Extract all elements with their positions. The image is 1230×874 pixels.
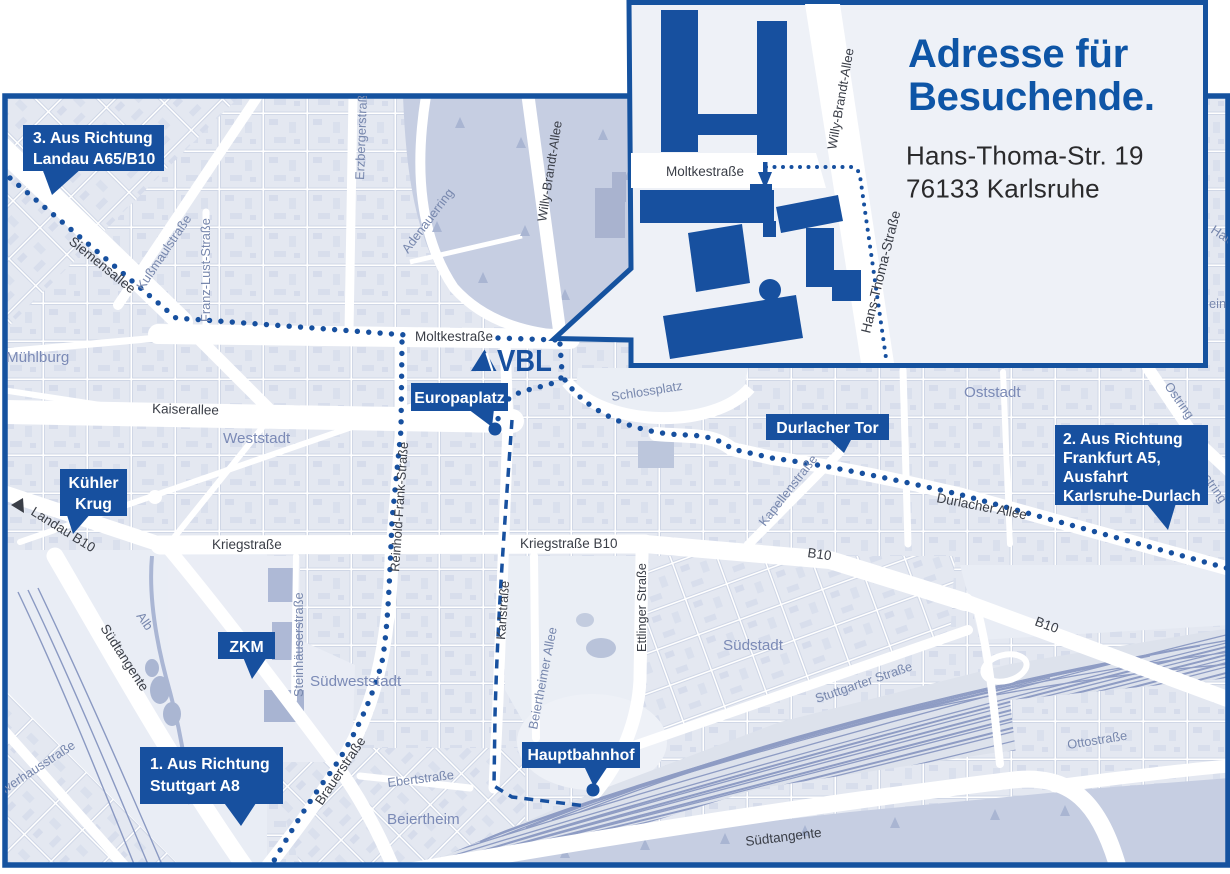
svg-text:Steinhäuserstraße: Steinhäuserstraße <box>291 592 306 697</box>
svg-text:1. Aus Richtung: 1. Aus Richtung <box>150 756 270 773</box>
svg-text:Kriegstraße B10: Kriegstraße B10 <box>520 536 618 551</box>
svg-text:Moltkestraße: Moltkestraße <box>666 164 744 179</box>
svg-text:Landau A65/B10: Landau A65/B10 <box>33 151 156 168</box>
svg-text:VBL: VBL <box>497 345 552 379</box>
svg-text:Hans-Thoma-Str. 19: Hans-Thoma-Str. 19 <box>906 141 1144 171</box>
svg-text:Südweststadt: Südweststadt <box>310 673 402 690</box>
svg-text:Oststadt: Oststadt <box>964 384 1021 401</box>
svg-text:Krug: Krug <box>75 496 112 513</box>
svg-text:Ausfahrt: Ausfahrt <box>1063 469 1129 486</box>
svg-text:Ettlinger Straße: Ettlinger Straße <box>634 563 649 652</box>
svg-text:Hauptbahnhof: Hauptbahnhof <box>527 747 635 764</box>
svg-text:Adresse für: Adresse für <box>908 32 1128 76</box>
svg-text:ein: ein <box>1209 296 1226 311</box>
svg-text:Beiertheim: Beiertheim <box>387 811 460 828</box>
svg-text:2. Aus Richtung: 2. Aus Richtung <box>1063 431 1183 448</box>
svg-text:Moltkestraße: Moltkestraße <box>415 329 493 344</box>
svg-text:Kriegstraße: Kriegstraße <box>212 537 282 552</box>
svg-text:Frankfurt A5,: Frankfurt A5, <box>1063 450 1161 467</box>
svg-text:Südstadt: Südstadt <box>723 637 784 654</box>
svg-text:Durlacher Tor: Durlacher Tor <box>776 420 878 437</box>
svg-text:Karlsruhe-Durlach: Karlsruhe-Durlach <box>1063 488 1201 505</box>
svg-text:3. Aus Richtung: 3. Aus Richtung <box>33 130 153 147</box>
svg-text:Kühler: Kühler <box>68 475 118 492</box>
svg-text:Franz-Lust-Straße: Franz-Lust-Straße <box>198 218 213 322</box>
svg-text:Weststadt: Weststadt <box>223 430 291 447</box>
svg-text:Europaplatz: Europaplatz <box>414 390 505 407</box>
svg-text:76133 Karlsruhe: 76133 Karlsruhe <box>906 174 1100 204</box>
svg-text:ZKM: ZKM <box>229 639 263 656</box>
svg-text:Kaiserallee: Kaiserallee <box>152 401 219 418</box>
svg-text:Besuchende.: Besuchende. <box>908 75 1155 119</box>
svg-text:Mühlburg: Mühlburg <box>6 349 69 366</box>
svg-text:Stuttgart A8: Stuttgart A8 <box>150 778 240 795</box>
